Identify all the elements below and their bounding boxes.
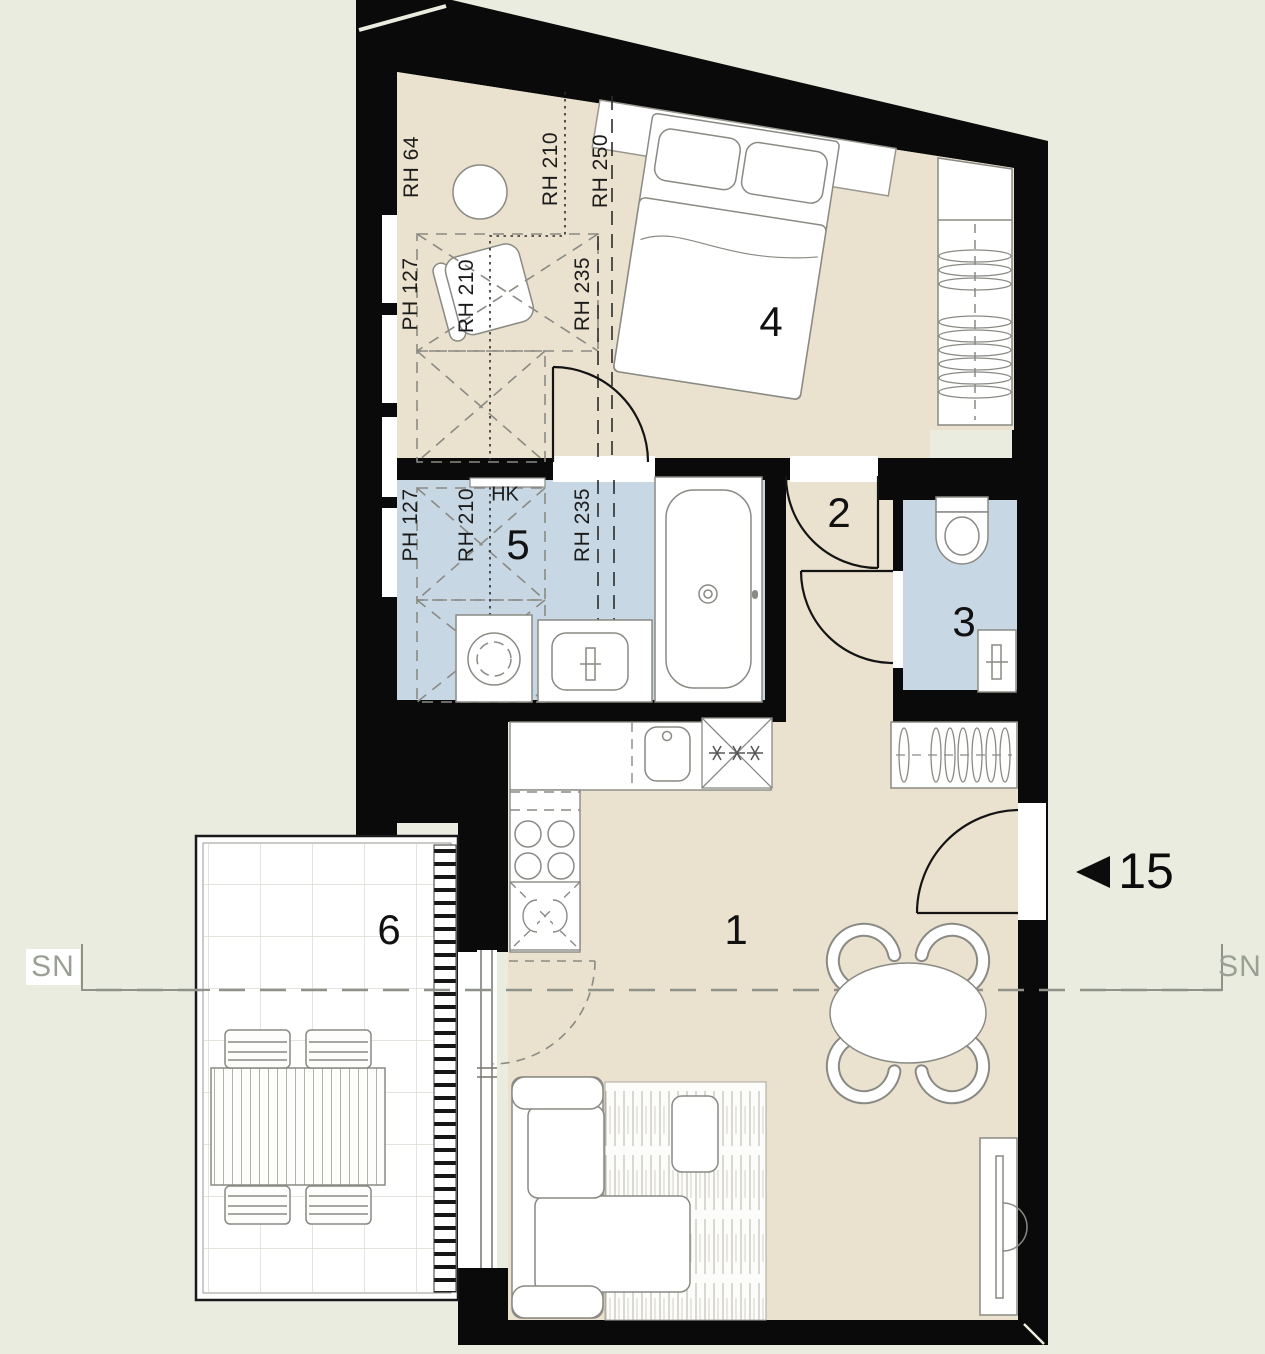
door-opening-hall xyxy=(790,456,878,482)
toilet xyxy=(936,497,988,564)
section-marker-right: SN xyxy=(1218,950,1262,984)
dishwasher xyxy=(510,882,580,950)
height-label-rh250: RH 250 xyxy=(589,134,613,208)
balcony-door-glazing xyxy=(458,950,497,1268)
refrigerator xyxy=(702,718,772,788)
section-marker-left: SN xyxy=(26,949,80,985)
bedroom-wardrobe xyxy=(938,158,1012,425)
kitchen-sink xyxy=(645,727,690,781)
door-opening-wc xyxy=(893,571,903,668)
floorplan-page: 1 2 3 4 5 6 RH 64 RH 210 RH 250 PH 127 R… xyxy=(0,0,1265,1354)
wc-sink xyxy=(978,630,1016,692)
dining-table xyxy=(830,963,986,1063)
room-number-bath: 5 xyxy=(506,521,529,569)
room-number-living: 1 xyxy=(724,906,747,954)
height-label-ph127: PH 127 xyxy=(399,488,423,561)
bedroom-stool xyxy=(453,165,507,219)
bathroom-vanity xyxy=(538,620,652,702)
unit-number: 15 xyxy=(1118,842,1174,900)
duvet xyxy=(613,197,827,400)
floorplan-drawing xyxy=(0,0,1265,1354)
room-number-balcony: 6 xyxy=(377,906,400,954)
balcony-table xyxy=(211,1068,385,1185)
bathtub xyxy=(655,477,762,702)
door-opening-entrance xyxy=(1018,803,1046,920)
coffee-table xyxy=(672,1096,718,1172)
balcony xyxy=(196,836,458,1300)
roof-window xyxy=(382,215,397,303)
entry-wardrobe xyxy=(891,722,1017,788)
height-label-ph127: PH 127 xyxy=(399,257,423,330)
roof-window xyxy=(382,315,397,403)
height-label-rh64: RH 64 xyxy=(400,136,424,198)
height-label-rh210: RH 210 xyxy=(539,132,563,206)
height-label-rh235: RH 235 xyxy=(571,257,595,331)
roof-window xyxy=(382,417,397,497)
room-number-wc: 3 xyxy=(952,598,975,646)
room-number-hall: 2 xyxy=(827,489,850,537)
height-label-rh235: RH 235 xyxy=(571,488,595,562)
double-bed xyxy=(613,113,840,400)
room-number-bedroom: 4 xyxy=(759,298,782,346)
washing-machine xyxy=(456,615,532,702)
balcony-grating xyxy=(434,845,456,1292)
height-label-hk: HK xyxy=(491,484,519,507)
height-label-rh210: RH 210 xyxy=(455,488,479,562)
roof-window xyxy=(382,508,397,597)
entrance-arrow-icon xyxy=(1076,856,1110,888)
door-opening-bath xyxy=(553,456,655,482)
height-label-rh210: RH 210 xyxy=(455,259,479,333)
